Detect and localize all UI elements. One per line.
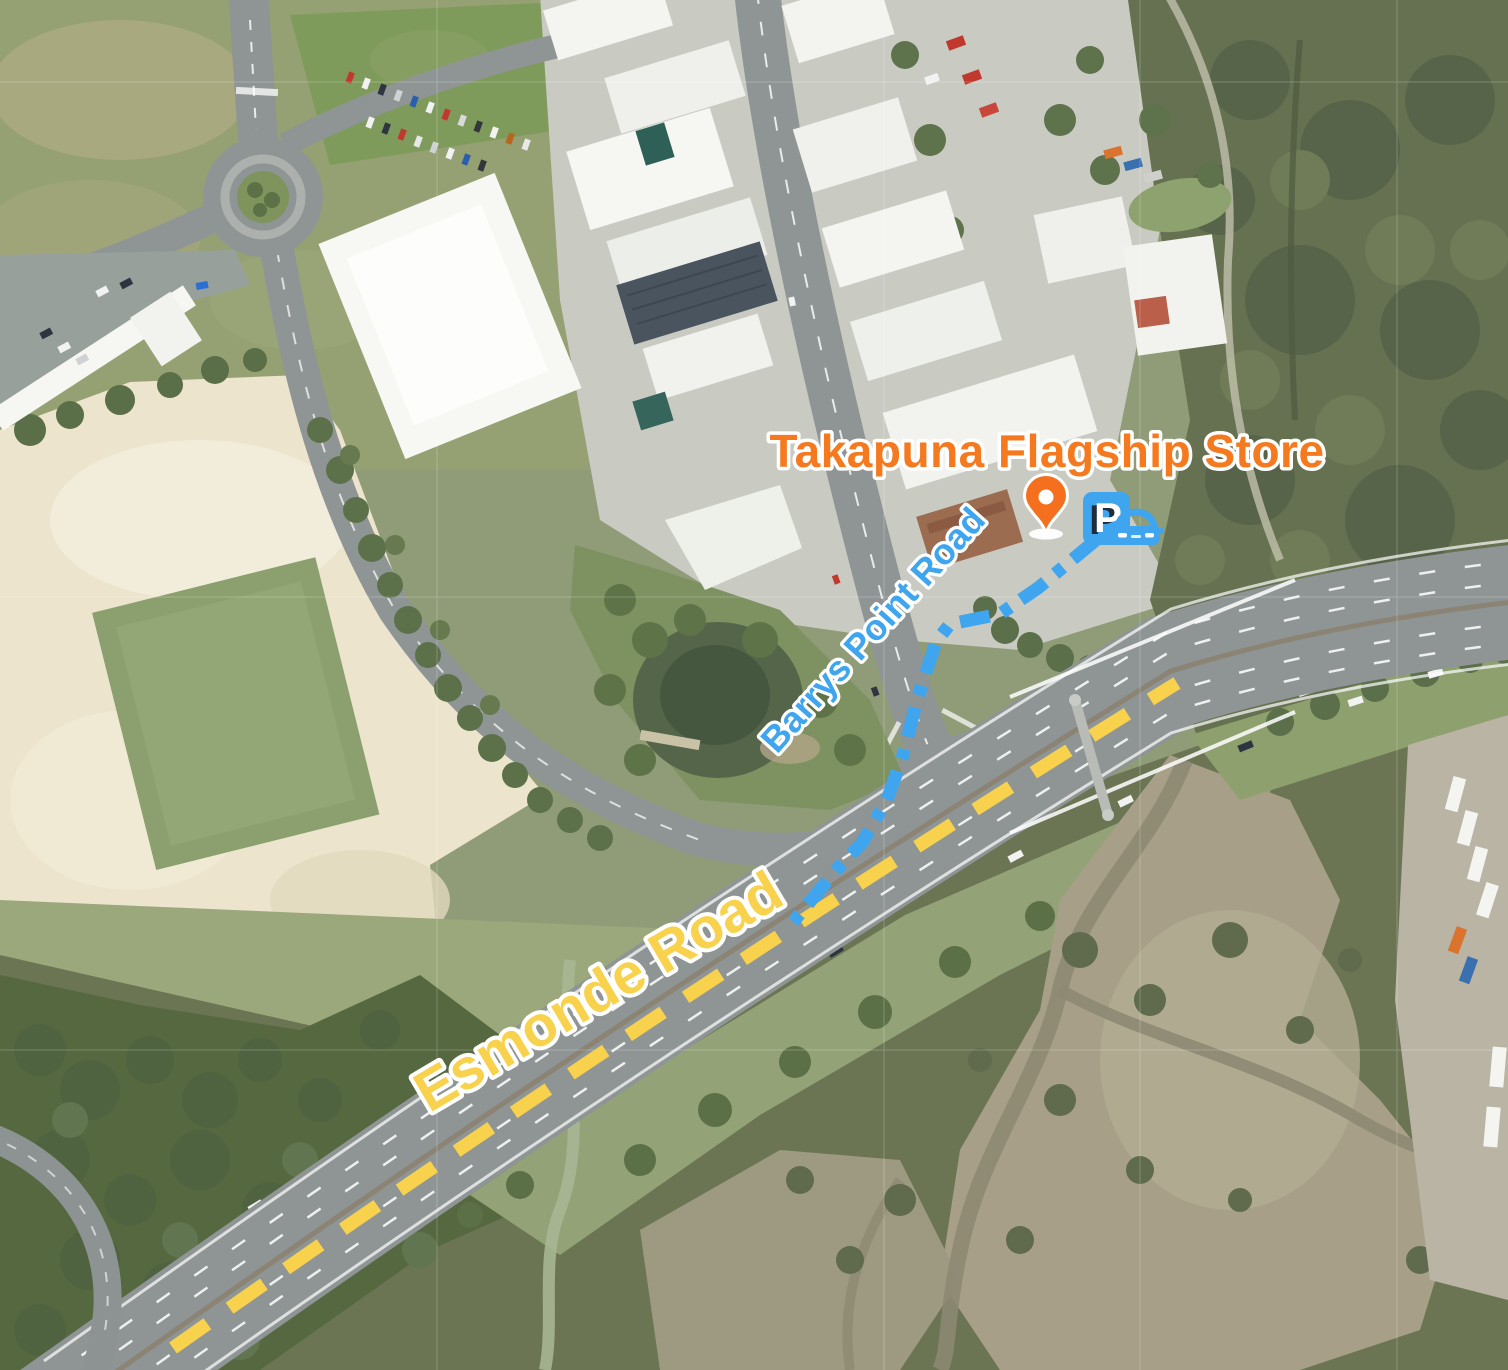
- aerial-map: Takapuna Flagship Store Barrys Point Roa…: [0, 0, 1508, 1370]
- aerial-basemap: [0, 0, 1508, 1370]
- store-title-label: Takapuna Flagship Store: [769, 425, 1324, 477]
- map-canvas: Takapuna Flagship Store Barrys Point Roa…: [0, 0, 1508, 1370]
